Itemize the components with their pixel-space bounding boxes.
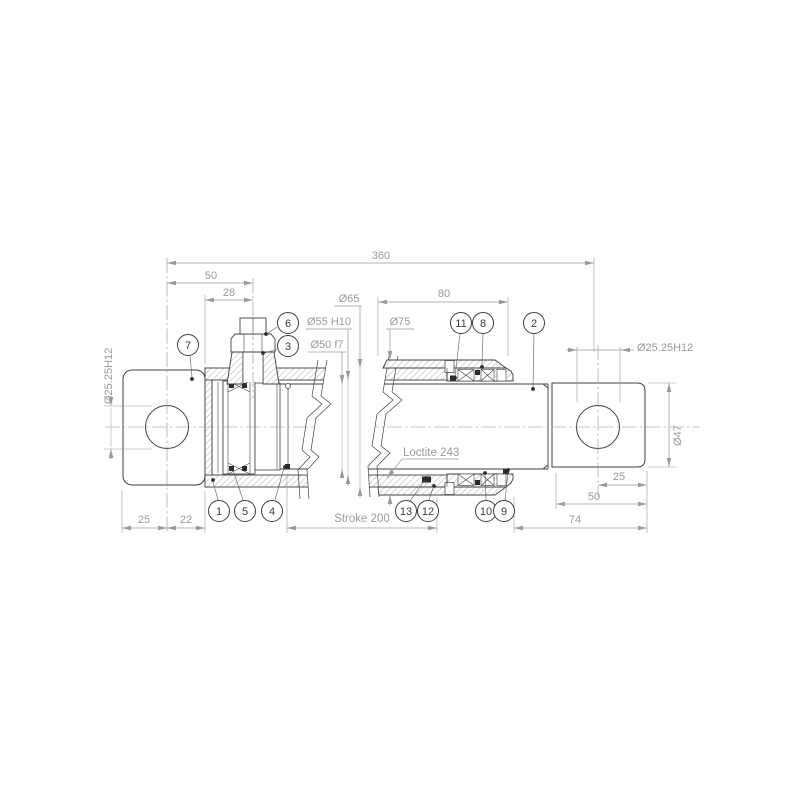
- dim-text-stroke: Stroke 200: [334, 513, 390, 525]
- balloon-6-label: 6: [285, 318, 291, 330]
- balloon-8-label: 8: [480, 318, 486, 330]
- balloon-11-label: 11: [455, 318, 466, 330]
- balloon-13-label: 13: [400, 506, 412, 518]
- dim-text-right-pin-bore: Ø25.25H12: [637, 342, 693, 354]
- note-thread-lock: Loctite 243: [403, 447, 459, 459]
- dim-text-rod-end-od: Ø47: [672, 425, 684, 446]
- hydraulic-cylinder-drawing: 360 50 28 80 Ø65 Ø55 H10 Ø50 f7 Ø75 25 2…: [0, 0, 800, 800]
- balloon-1-label: 1: [216, 506, 222, 518]
- dim-text-head-length: 80: [438, 288, 450, 300]
- head-collar-top: [383, 360, 506, 368]
- balloon-5-label: 5: [242, 506, 248, 518]
- balloon-12-label: 12: [422, 506, 434, 518]
- piston-spacer: [255, 383, 280, 470]
- right-eye-block: [552, 383, 645, 467]
- dim-text-rod-dia: Ø50 f7: [310, 339, 343, 351]
- piston-assembly: [212, 377, 291, 479]
- dim-text-pin-to-port: 50: [205, 270, 217, 282]
- dim-text-left-pin-bore: Ø25.25H12: [103, 348, 115, 404]
- cap-end: [205, 368, 212, 487]
- balloon-2-label: 2: [531, 318, 537, 330]
- dim-text-bore: Ø55 H10: [307, 316, 351, 328]
- dim-text-right-25: 25: [613, 471, 625, 483]
- dim-text-right-74: 74: [569, 514, 581, 526]
- balloon-7-label: 7: [185, 340, 191, 352]
- dim-text-left-25: 25: [138, 514, 150, 526]
- balloon-9-label: 9: [501, 506, 507, 518]
- dim-text-head-od: Ø75: [390, 316, 411, 328]
- balloon-10-label: 10: [480, 506, 492, 518]
- dim-text-left-22: 22: [180, 514, 192, 526]
- drawing-canvas: 360 50 28 80 Ø65 Ø55 H10 Ø50 f7 Ø75 25 2…: [0, 0, 800, 800]
- balloon-3-label: 3: [285, 341, 291, 353]
- dim-text-right-50: 50: [588, 491, 600, 503]
- head-collar-bottom: [378, 487, 506, 495]
- dim-text-tube-od: Ø65: [339, 293, 360, 305]
- dim-text-cap-to-port: 28: [223, 287, 235, 299]
- balloon-4-label: 4: [269, 506, 275, 518]
- dim-text-overall: 360: [372, 250, 390, 262]
- cylinder-geometry: [105, 258, 700, 533]
- left-eye-block: [123, 370, 205, 485]
